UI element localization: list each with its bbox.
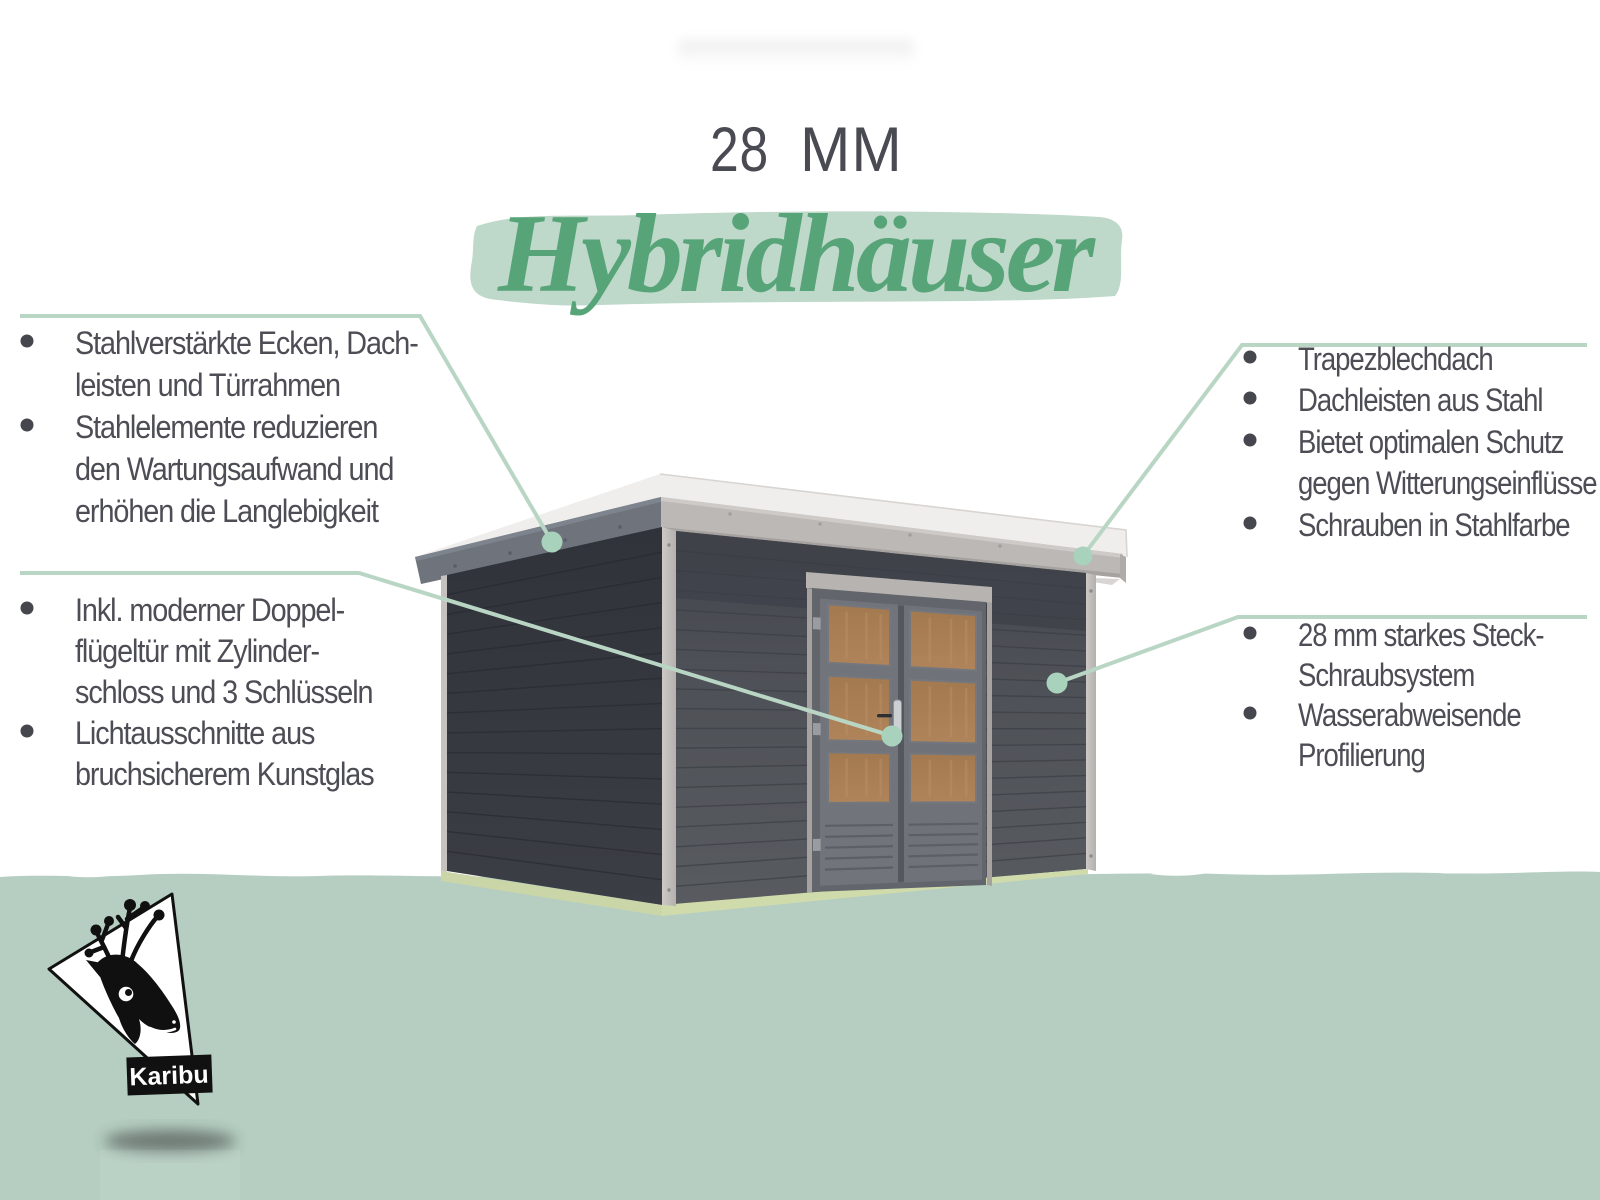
svg-text:Karibu: Karibu (129, 1061, 209, 1092)
